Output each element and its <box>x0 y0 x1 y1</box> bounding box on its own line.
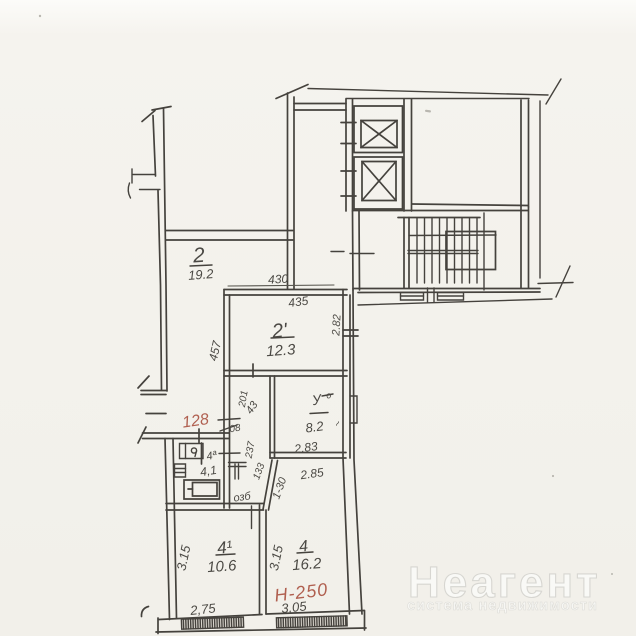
svg-text:2: 2 <box>191 244 206 268</box>
svg-text:16.2: 16.2 <box>292 555 323 574</box>
svg-text:4,1: 4,1 <box>199 463 217 479</box>
svg-text:8.2: 8.2 <box>304 418 325 435</box>
svg-text:3,05: 3,05 <box>280 598 307 616</box>
svg-text:2.82: 2.82 <box>330 314 343 337</box>
svg-text:озб: озб <box>233 490 252 504</box>
svg-text:430: 430 <box>268 272 289 287</box>
svg-text:435: 435 <box>287 293 309 310</box>
svg-text:система недвижимости: система недвижимости <box>407 598 598 614</box>
svg-text:12.3: 12.3 <box>266 341 297 360</box>
svg-text:2,75: 2,75 <box>188 600 216 618</box>
svg-text:10.6: 10.6 <box>207 557 238 576</box>
svg-text:19.2: 19.2 <box>188 266 215 283</box>
